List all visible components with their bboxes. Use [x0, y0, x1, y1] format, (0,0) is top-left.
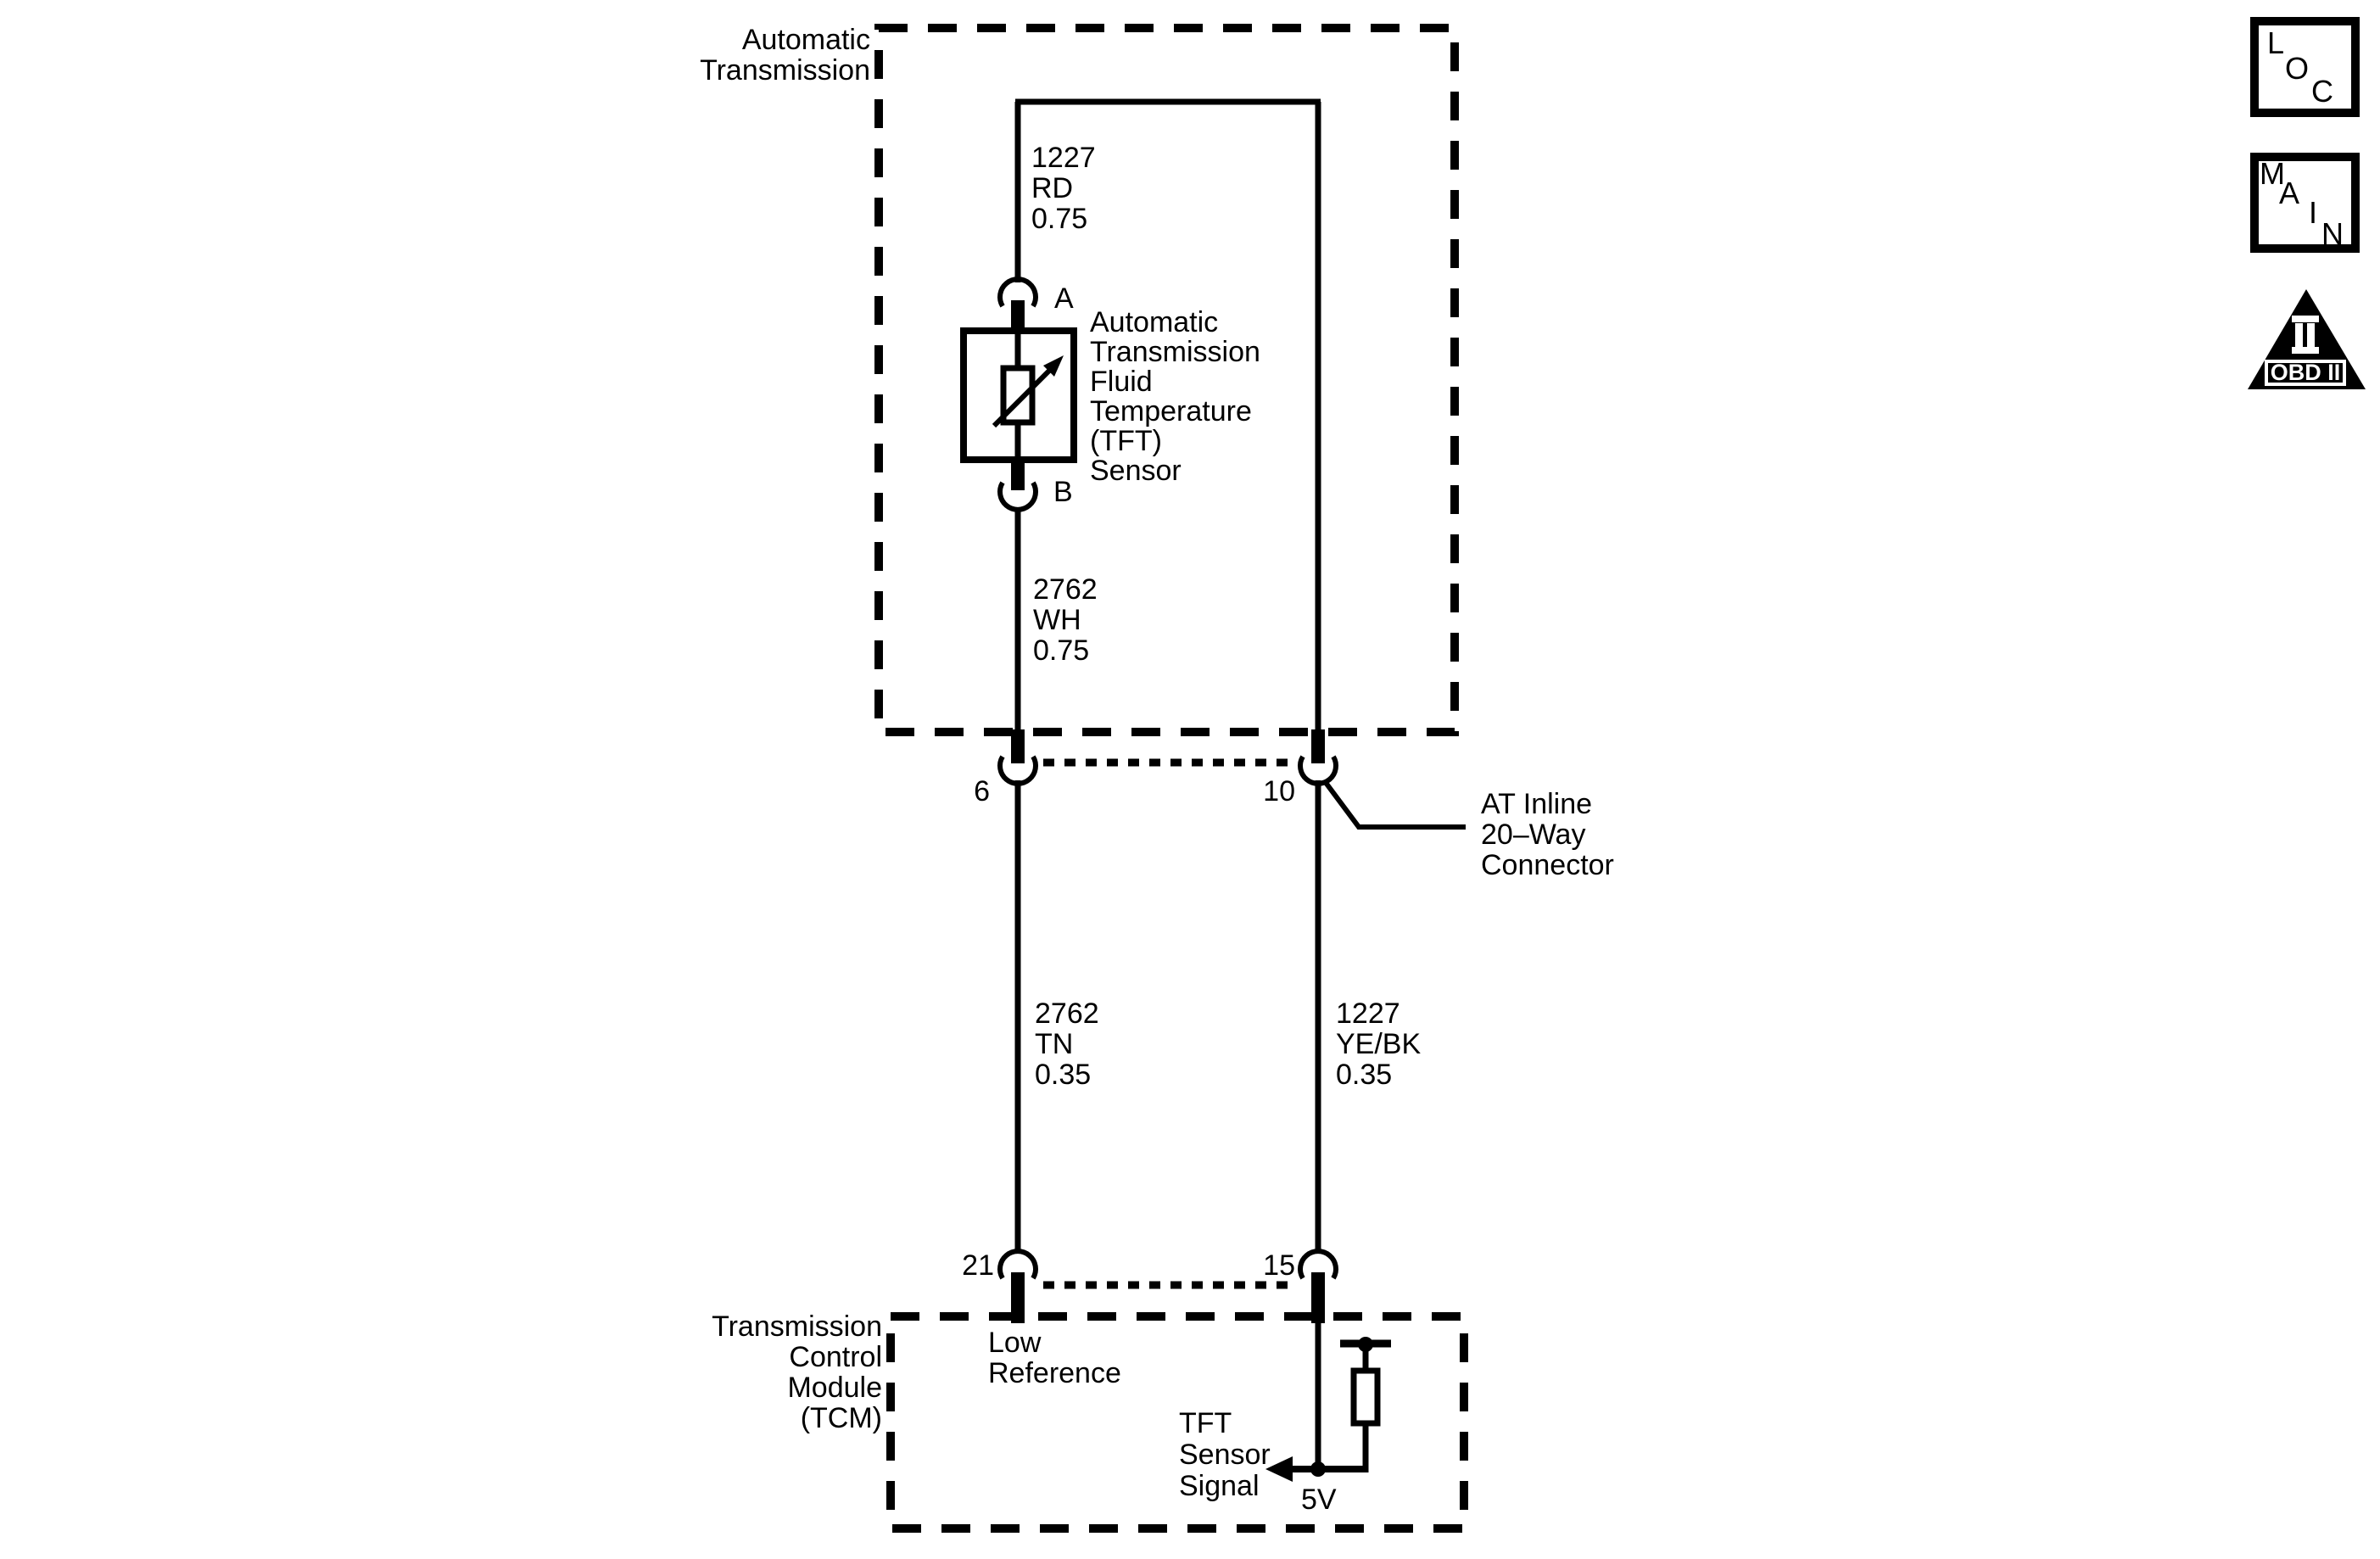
- loc-letter: O: [2285, 51, 2309, 86]
- wire-label-1227-rd: 0.75: [1031, 203, 1087, 235]
- tft-sensor-label: Sensor: [1090, 455, 1182, 487]
- loc-letter: C: [2311, 74, 2333, 109]
- roman-ii-right-column: [2307, 323, 2315, 347]
- inline-pin-6-label: 6: [974, 775, 990, 807]
- obd2-badge-icon: OBD II: [2248, 289, 2366, 389]
- wire-label-2762-tn: 2762: [1035, 997, 1099, 1030]
- wire-label-2762-wh: 0.75: [1033, 634, 1089, 667]
- wire-label-1227-rd: RD: [1031, 172, 1073, 204]
- inline-connector-label: 20–Way: [1481, 819, 1585, 851]
- automatic-transmission-label: Automatic: [742, 24, 870, 56]
- wire-label-1227-rd: 1227: [1031, 142, 1096, 174]
- tft-sensor-signal-label: Signal: [1179, 1470, 1260, 1502]
- roman-ii-left-column: [2295, 323, 2303, 347]
- inline-connector-callout-line: [1324, 780, 1466, 827]
- low-reference-label: Reference: [988, 1357, 1121, 1389]
- tcm-pin-15-label: 15: [1263, 1249, 1295, 1282]
- inline-connector-label: Connector: [1481, 849, 1614, 881]
- tcm-label: Control: [789, 1341, 882, 1373]
- terminal-b-label: B: [1053, 476, 1073, 508]
- tft-sensor-wiring-diagram: Automatic Transmission 1227 RD 0.75 A Au…: [0, 0, 2380, 1559]
- main-letter: A: [2279, 176, 2299, 210]
- wire-label-1227-yebk: 1227: [1336, 997, 1400, 1030]
- tft-sensor-label: Automatic: [1090, 306, 1218, 338]
- supply-5v-label: 5V: [1301, 1484, 1337, 1516]
- inline-connector-label: AT Inline: [1481, 788, 1592, 820]
- tcm-label: (TCM): [801, 1402, 882, 1434]
- low-reference-label: Low: [988, 1327, 1042, 1359]
- tcm-pin-21-label: 21: [962, 1249, 994, 1282]
- tft-sensor-signal-label: Sensor: [1179, 1439, 1271, 1471]
- tft-sensor-signal-label: TFT: [1179, 1407, 1232, 1439]
- wire-label-2762-tn: 0.35: [1035, 1059, 1091, 1091]
- tcm-label: Module: [787, 1372, 882, 1404]
- automatic-transmission-label: Transmission: [700, 54, 870, 87]
- loc-letter: L: [2267, 25, 2284, 60]
- wire-label-2762-tn: TN: [1035, 1028, 1073, 1060]
- obd2-label: OBD II: [2271, 360, 2341, 385]
- wire-label-2762-wh: 2762: [1033, 573, 1098, 606]
- main-badge-icon: M A I N: [2254, 156, 2355, 251]
- tcm-label: Transmission: [712, 1310, 882, 1343]
- main-letter: N: [2321, 216, 2344, 251]
- tft-sensor-label: Temperature: [1090, 395, 1252, 427]
- terminal-a-label: A: [1054, 282, 1074, 315]
- main-letter: I: [2309, 195, 2317, 230]
- roman-ii-bottom-bar: [2292, 347, 2319, 354]
- inline-pin-10-label: 10: [1263, 775, 1295, 807]
- pullup-resistor-icon: [1354, 1371, 1377, 1423]
- wire-label-2762-wh: WH: [1033, 604, 1081, 636]
- loc-badge-icon: L O C: [2254, 21, 2355, 113]
- roman-ii-top-bar: [2292, 316, 2319, 322]
- wire-label-1227-yebk: YE/BK: [1336, 1028, 1421, 1060]
- tft-sensor-label: Transmission: [1090, 336, 1260, 368]
- wiring-diagram-page: Automatic Transmission 1227 RD 0.75 A Au…: [0, 0, 2380, 1559]
- tft-sensor-label: Fluid: [1090, 366, 1153, 398]
- tft-sensor-label: (TFT): [1090, 425, 1162, 457]
- wire-label-1227-yebk: 0.35: [1336, 1059, 1392, 1091]
